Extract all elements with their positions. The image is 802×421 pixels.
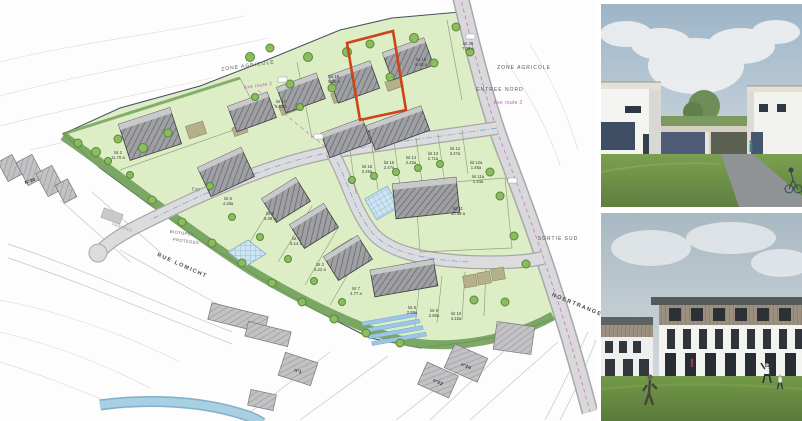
terrace-building [651,297,802,378]
lot-label-14: lot 142.42a [406,156,416,166]
lot-label-18: lot 185.40 a [328,75,340,85]
site-plan-drawing [0,0,597,421]
lot-label-5: lot 55.08 a [264,212,276,222]
house-right [747,86,802,157]
site-plan-image: ZONE AGRICOLE ZONE AGRICOLE ENTREE NORD … [0,0,597,421]
person-at-door [691,359,693,367]
render-top-drawing [601,4,802,207]
garage-band [651,116,751,158]
upper-windows [667,329,802,349]
axe-route-3-label: Axe route 3 [494,100,523,106]
left-building [601,317,653,379]
person [749,140,752,152]
river [100,401,262,421]
lot-label-2: lot 211.70 a [111,151,125,161]
sortie-sud-label: SORTIE SUD [538,236,578,242]
lot-label-15: lot 152.47a [384,161,394,171]
lot-label-12a: lot 12a1.46a [470,161,483,171]
site-boundary [63,12,562,348]
lot-label-11a: lot 11a1.34a [472,175,484,185]
lot-label-9: lot 92.80a [429,309,439,319]
lot-label-8: lot 82.59a [407,306,417,316]
house-left [601,82,661,157]
lot-label-12: lot 123.47a [450,147,460,157]
lot-label-10: lot 103.15a [451,312,461,322]
lot-label-3: lot 35.22 a [314,263,326,273]
lot-label-20: lot 207.02 a [462,42,474,52]
zone-agricole-right-label: ZONE AGRICOLE [497,65,551,71]
render-top-image [601,4,802,207]
lot-label-6: lot 64.28a [223,197,233,207]
render-bottom-drawing [601,213,802,421]
lawn [601,376,802,421]
lot-label-19: lot 196.45 a [415,58,427,68]
lot-label-7: lot 74.77 a [350,287,362,297]
lot-label-16: lot 162.46a [362,165,372,175]
esp-label: Esp [192,187,200,192]
lot-label-17: lot 175.63 a [275,100,287,110]
lot-label-11: lot 1110.49 a [451,207,465,217]
entree-nord-label: ENTREE NORD [476,87,523,93]
listing-collage: ZONE AGRICOLE ZONE AGRICOLE ENTREE NORD … [0,0,802,421]
lot-label-13: lot 132.71a [428,152,438,162]
lot-label-4: lot 45.14 a [290,237,302,247]
render-bottom-image [601,213,802,421]
